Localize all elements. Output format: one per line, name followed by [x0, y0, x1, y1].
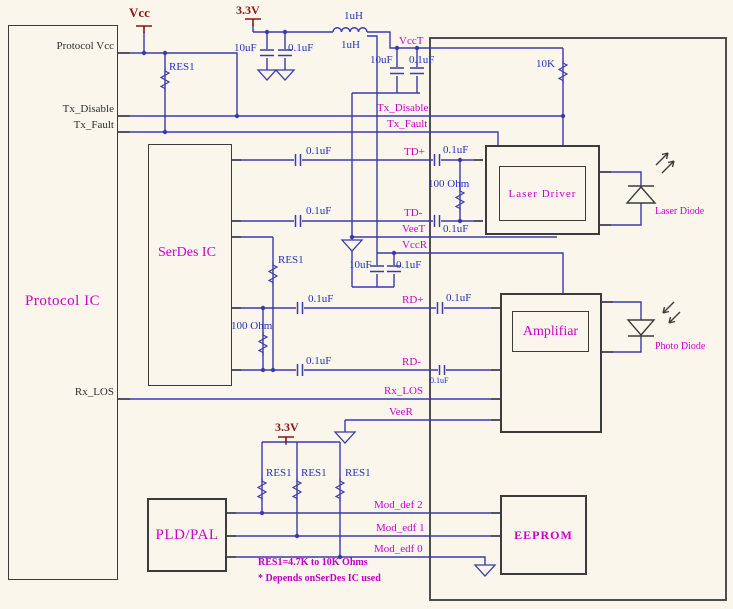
- ground-icon: [258, 70, 276, 80]
- serdes-ic-block: SerDes IC: [148, 144, 232, 386]
- res1-serdes-label: RES1: [278, 255, 304, 267]
- cap-10uf-vccr-label: 10uF: [349, 260, 372, 272]
- net-tx-disable: Tx_Disable: [377, 103, 428, 115]
- net-td-minus: TD-: [404, 208, 422, 220]
- vcc-symbol: [136, 26, 152, 33]
- amplifier-label: Amplifiar: [523, 324, 578, 340]
- eeprom-block: EEPROM: [500, 495, 587, 575]
- net-veet: VeeT: [402, 224, 425, 236]
- pin-rx-los: Rx_LOS: [30, 387, 114, 399]
- res-10k-label: 10K: [536, 59, 555, 71]
- net-tx-fault: Tx_Fault: [387, 119, 427, 131]
- serdes-ic-label: SerDes IC: [158, 246, 216, 261]
- inductor-label-lower: 1uH: [341, 40, 360, 52]
- net-rx-los: Rx_LOS: [384, 386, 423, 398]
- cap-01uf-rdp2-label: 0.1uF: [446, 293, 471, 305]
- cap-10uf-top-label: 10uF: [234, 43, 257, 55]
- inductor-1uh: [333, 28, 367, 32]
- cap-01uf-vcct-label: 0.1uF: [409, 55, 434, 67]
- ground-icon: [475, 565, 495, 576]
- eeprom-label: EEPROM: [514, 528, 573, 543]
- net-mod-edf-1: Mod_edf 1: [376, 523, 425, 535]
- net-vccr: VccR: [402, 240, 427, 252]
- res1-pullup3-label: RES1: [345, 468, 371, 480]
- amplifier-inner: Amplifiar: [512, 311, 589, 352]
- schematic-page: Protocol IC SerDes IC Laser Driver Ampli…: [0, 0, 733, 609]
- cap-01uf-rdm2-label: 0.1uF: [430, 377, 448, 385]
- v33-top-label: 3.3V: [236, 4, 260, 17]
- note-depends: * Depends onSerDes IC used: [258, 574, 381, 585]
- cap-01uf-rdp1-label: 0.1uF: [308, 294, 333, 306]
- laser-diode-label: Laser Diode: [655, 207, 704, 218]
- cap-01uf-tdp1-label: 0.1uF: [306, 146, 331, 158]
- inductor-label-upper: 1uH: [344, 11, 363, 23]
- note-res1-value: RES1=4.7K to 10K Ohms: [258, 558, 368, 569]
- net-vcct: VccT: [399, 36, 423, 48]
- pin-tx-disable: Tx_Disable: [30, 104, 114, 116]
- net-mod-edf-0: Mod_edf 0: [374, 544, 423, 556]
- cap-01uf-vccr-label: 0.1uF: [396, 260, 421, 272]
- net-td-plus: TD+: [404, 147, 425, 159]
- vcc-label: Vcc: [129, 6, 150, 20]
- laser-diode-icon: [627, 153, 674, 203]
- pld-pal-block: PLD/PAL: [147, 498, 227, 572]
- v33-top-symbol: [245, 19, 261, 26]
- cap-01uf-tdm2-label: 0.1uF: [443, 224, 468, 236]
- net-rd-plus: RD+: [402, 295, 423, 307]
- cap-10uf-vcct-label: 10uF: [370, 55, 393, 67]
- cap-01uf-tdp2-label: 0.1uF: [443, 145, 468, 157]
- net-mod-def-2: Mod_def 2: [374, 500, 423, 512]
- pin-tx-fault: Tx_Fault: [30, 120, 114, 132]
- v33-bottom-label: 3.3V: [275, 421, 299, 434]
- ground-icon: [276, 70, 294, 80]
- cap-01uf-rdm1-label: 0.1uF: [306, 356, 331, 368]
- protocol-ic-label: Protocol IC: [25, 294, 100, 310]
- ground-icon: [342, 240, 362, 251]
- net-rd-minus: RD-: [402, 357, 421, 369]
- laser-driver-inner: Laser Driver: [499, 166, 586, 221]
- res1-pullup1-label: RES1: [266, 468, 292, 480]
- cap-01uf-tdm1-label: 0.1uF: [306, 206, 331, 218]
- res1-pullup2-label: RES1: [301, 468, 327, 480]
- cap-01uf-top-label: 0.1uF: [288, 43, 313, 55]
- net-veer: VeeR: [389, 407, 413, 419]
- res-100ohm-rd-label: 100 Ohm: [231, 321, 272, 333]
- photo-diode-label: Photo Diode: [655, 342, 705, 353]
- res1-top-label: RES1: [169, 62, 195, 74]
- res-100ohm-td-label: 100 Ohm: [428, 179, 469, 191]
- laser-driver-label: Laser Driver: [509, 188, 577, 200]
- pin-protocol-vcc: Protocol Vcc: [30, 41, 114, 53]
- pld-pal-label: PLD/PAL: [156, 527, 219, 544]
- photo-diode-icon: [628, 302, 680, 336]
